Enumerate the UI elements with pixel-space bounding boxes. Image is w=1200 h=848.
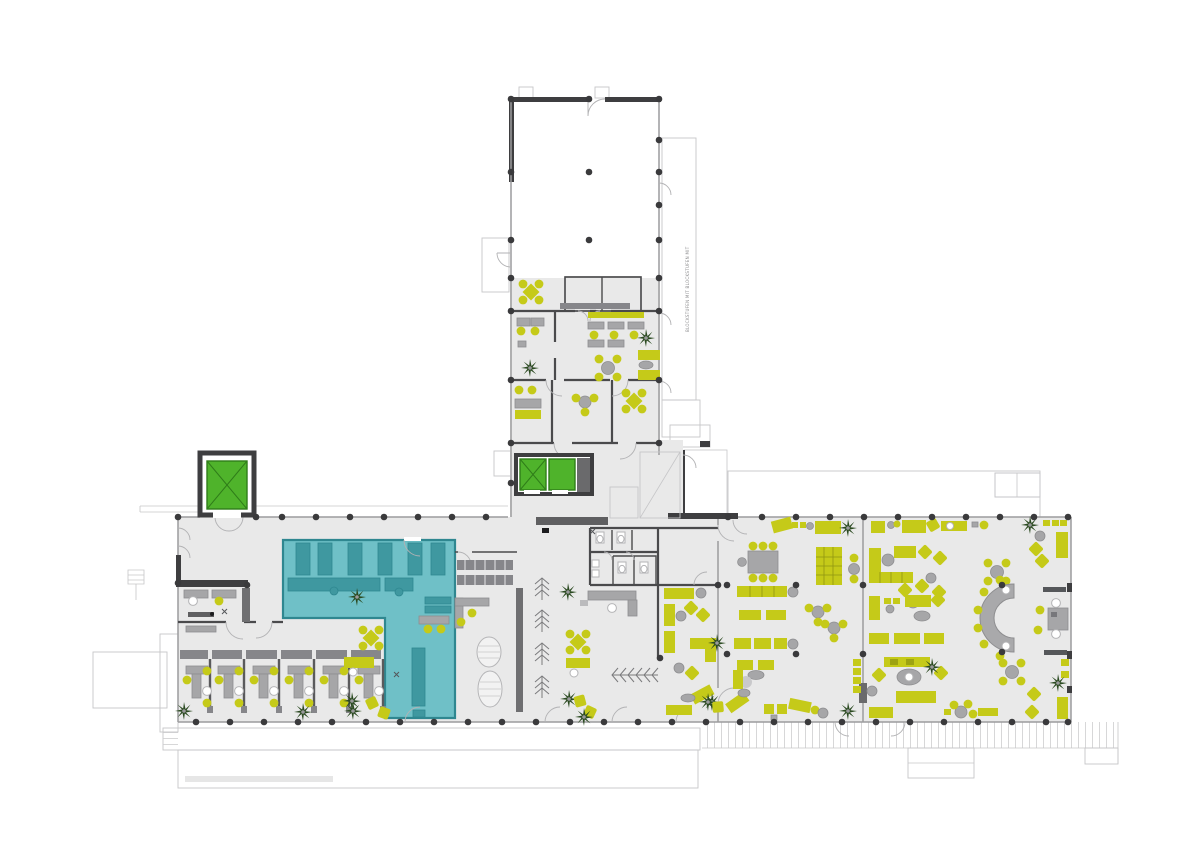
roof-box <box>519 87 533 98</box>
lamp <box>570 669 578 677</box>
exterior-stair <box>482 238 509 292</box>
sofa <box>869 548 881 574</box>
plant <box>175 702 193 720</box>
door-gap <box>404 537 421 541</box>
plant <box>708 634 726 652</box>
chair <box>215 597 224 606</box>
office-chair <box>1052 630 1061 639</box>
elevator-door <box>524 490 540 494</box>
sofa <box>754 638 771 649</box>
work-desk <box>419 616 449 624</box>
chair <box>528 386 537 395</box>
sofa <box>664 631 675 653</box>
bench <box>566 658 590 668</box>
side-table <box>926 573 936 583</box>
canopy-line <box>140 506 508 512</box>
elevator-car <box>549 459 575 490</box>
toilet <box>640 562 648 573</box>
side-table <box>1035 531 1045 541</box>
exterior-stair <box>662 400 700 437</box>
roof-box <box>595 87 609 98</box>
desk <box>608 322 624 329</box>
plant <box>923 658 941 676</box>
side-table <box>580 600 588 606</box>
stair-annotation: BLOCKSTUFEN MIT BLOCKSTUFEN MIT <box>685 246 690 332</box>
bench <box>739 610 761 620</box>
toilet <box>618 562 626 573</box>
shelf <box>408 543 422 575</box>
side-table <box>818 708 828 718</box>
sofa <box>869 633 889 644</box>
fire-ladder <box>160 634 178 732</box>
oval-table <box>639 361 653 369</box>
lamp <box>947 523 954 530</box>
sofa <box>758 660 774 670</box>
armchair <box>777 704 787 714</box>
side-table <box>788 587 798 597</box>
chair <box>457 618 466 627</box>
chair <box>630 331 639 340</box>
shelf <box>296 543 310 575</box>
side-table <box>867 686 877 696</box>
sofa <box>664 604 675 626</box>
side-table <box>674 663 684 673</box>
plant <box>521 359 539 377</box>
chair <box>468 609 477 618</box>
office-chair <box>1052 599 1061 608</box>
sofa <box>905 595 931 607</box>
floor-plan-svg: BLOCKSTUFEN MIT BLOCKSTUFEN MIT <box>0 0 1200 848</box>
desk <box>517 318 530 326</box>
chair <box>610 331 619 340</box>
sofa <box>737 660 753 670</box>
desk <box>588 322 604 329</box>
shelf <box>318 543 332 575</box>
pouf <box>800 522 806 528</box>
chair <box>517 327 526 336</box>
wall-block <box>700 441 710 447</box>
side-table <box>788 639 798 649</box>
plant <box>348 588 366 606</box>
pouf <box>792 522 798 528</box>
sofa <box>515 410 541 419</box>
chaise <box>733 670 743 689</box>
desk <box>455 598 489 606</box>
toilet <box>617 532 625 543</box>
elevator-door <box>213 512 241 518</box>
shelf <box>378 543 392 575</box>
armchair <box>764 704 774 714</box>
shelf-end <box>330 587 338 595</box>
sofa <box>902 520 926 533</box>
sink <box>592 560 599 567</box>
oval-table <box>738 689 750 697</box>
chair <box>590 331 599 340</box>
sofa <box>664 588 694 599</box>
office-chair <box>608 604 617 613</box>
plant <box>559 583 577 601</box>
side-table <box>807 523 814 530</box>
terrace-bottom-left <box>163 728 700 788</box>
armchair <box>738 558 747 567</box>
reception-desk <box>588 591 636 600</box>
shelf <box>348 543 362 575</box>
terrace-bottom <box>702 722 1118 778</box>
desk <box>1048 608 1068 630</box>
desk <box>608 340 624 347</box>
sofa <box>896 691 936 703</box>
faint-step <box>185 776 333 782</box>
chair <box>424 625 433 634</box>
elevator-north <box>200 453 254 518</box>
bench <box>978 708 998 716</box>
toilet <box>596 532 604 543</box>
bench <box>766 610 786 620</box>
balcony-outline <box>93 652 167 708</box>
printer <box>210 612 214 616</box>
oval-table <box>681 694 695 702</box>
side-table <box>518 341 526 347</box>
shelf-tall <box>412 648 425 706</box>
plant <box>839 519 857 537</box>
plant <box>575 708 593 726</box>
wall-pier <box>516 588 523 712</box>
plant <box>637 329 655 347</box>
sofa <box>869 707 893 718</box>
elevator-door <box>552 490 568 494</box>
plant <box>294 703 312 721</box>
bench <box>588 312 644 318</box>
chair <box>531 327 540 336</box>
sink <box>592 570 599 577</box>
sofa <box>705 649 716 662</box>
desk <box>588 340 604 347</box>
vestibule-room <box>684 450 727 514</box>
sofa <box>869 596 880 620</box>
bench <box>515 399 541 408</box>
chair <box>515 386 524 395</box>
office-chair <box>189 597 198 606</box>
lamp <box>349 668 357 676</box>
plant <box>839 702 857 720</box>
desk <box>184 590 208 598</box>
floor-plan-page: BLOCKSTUFEN MIT BLOCKSTUFEN MIT <box>0 0 1200 848</box>
oval-table <box>914 611 930 621</box>
sofa <box>666 705 692 715</box>
exterior-gallery <box>662 138 696 400</box>
shelf <box>413 710 425 717</box>
shelf <box>425 597 451 604</box>
desk <box>212 590 236 598</box>
sofa <box>774 638 787 649</box>
reception-desk <box>628 600 637 616</box>
armchair <box>849 564 860 575</box>
corridor-shelf <box>186 626 216 632</box>
sofa <box>344 657 374 668</box>
sofa <box>924 633 944 644</box>
exterior-stair <box>494 451 512 476</box>
sofa <box>894 633 920 644</box>
shelf <box>425 606 451 613</box>
sideboard <box>1044 650 1067 655</box>
desk <box>531 318 544 326</box>
terrace-top <box>728 471 1040 517</box>
sofa <box>1057 697 1068 719</box>
desk <box>628 322 644 329</box>
plant <box>344 702 362 720</box>
drain-detail <box>128 570 144 600</box>
side-table <box>676 611 686 621</box>
sofa <box>734 638 751 649</box>
sideboard <box>1043 587 1066 592</box>
shelf <box>431 543 445 575</box>
shaft-panel <box>577 458 590 492</box>
plant <box>343 692 361 710</box>
side-table <box>882 554 894 566</box>
sofa <box>894 546 916 558</box>
sofa <box>1056 532 1068 558</box>
armchair <box>696 588 706 598</box>
shelf-end <box>395 588 403 596</box>
wall-pier <box>242 588 250 622</box>
wall-shelf <box>560 303 630 309</box>
chair <box>437 625 446 634</box>
bench <box>638 350 660 360</box>
sofa <box>815 521 841 534</box>
elevator-core-tower <box>516 455 592 494</box>
sofa <box>871 521 885 533</box>
plant <box>1049 674 1067 692</box>
conference-table <box>748 551 778 573</box>
